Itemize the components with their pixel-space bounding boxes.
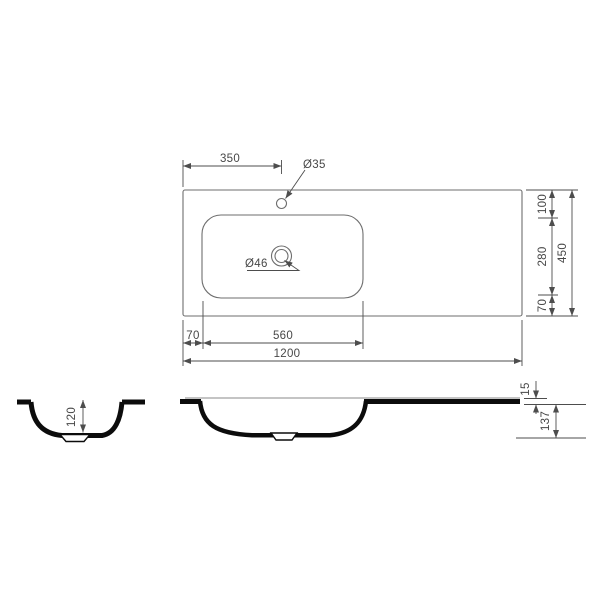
right-rim-section: [122, 400, 145, 405]
dim-label-back-to-basin: 100: [537, 194, 549, 214]
dim-label-basin-width: 560: [273, 330, 293, 342]
dim-label-drain-hole: Ø46: [245, 258, 268, 270]
bowl-wall-section: [200, 401, 366, 435]
dim-label-bowl-depth: 120: [66, 407, 78, 427]
dim-bowl-depth: 120: [66, 400, 83, 433]
dim-label-faucet-offset: 350: [220, 153, 240, 165]
faucet-hole: [277, 199, 287, 209]
drawing-canvas: 350 Ø35 Ø46 100 280 70 450: [0, 0, 600, 600]
dim-rim-thickness: 15: [520, 381, 586, 414]
leader-line: [286, 170, 306, 199]
side-section-view: 120: [17, 400, 145, 442]
front-section-view: 15 137: [180, 381, 586, 440]
dim-label-body-height: 137: [540, 411, 552, 431]
worktop-slab-section: [364, 399, 520, 404]
dim-label-rim-thickness: 15: [520, 382, 532, 395]
basin-outline: [202, 215, 363, 298]
dim-depth-chain: 100 280 70 450: [526, 190, 578, 316]
drain-fitting-section: [271, 433, 297, 440]
dim-faucet-offset: 350: [183, 153, 282, 187]
drain-hole: [275, 250, 288, 263]
dim-body-height: 137: [516, 405, 586, 439]
label-faucet-hole: Ø35: [286, 159, 326, 199]
washbasin-technical-drawing: 350 Ø35 Ø46 100 280 70 450: [0, 0, 600, 600]
worktop-outline: [183, 190, 522, 316]
dim-label-faucet-hole: Ø35: [303, 159, 326, 171]
dim-width-chain: 70 560 1200: [183, 301, 522, 366]
dim-label-basin-to-front: 70: [537, 299, 549, 312]
dim-label-left-to-basin: 70: [186, 330, 199, 342]
dim-label-overall-width: 1200: [274, 348, 301, 360]
dim-label-overall-depth: 450: [557, 243, 569, 263]
top-view: 350 Ø35 Ø46 100 280 70 450: [183, 153, 578, 366]
drain-fitting-section: [60, 435, 90, 442]
dim-label-basin-depth: 280: [537, 246, 549, 266]
